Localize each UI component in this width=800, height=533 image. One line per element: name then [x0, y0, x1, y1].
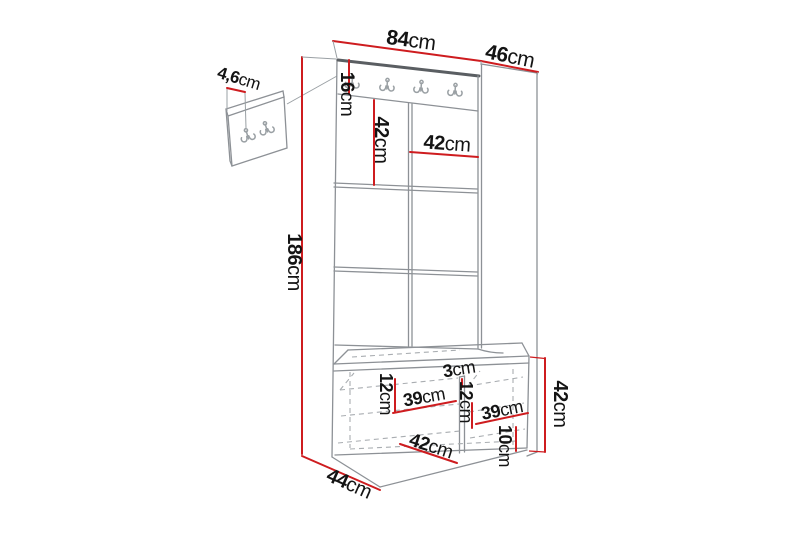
wall-panel-front — [228, 97, 287, 166]
hidden-shelf-line — [341, 404, 459, 416]
dimension-labels-group: 84cm 46cm 4,6cm 16cm 42cm 42cm 186cm 12c… — [215, 25, 571, 503]
dim-label-bench-width-right: 39cm — [479, 396, 524, 424]
wall-panel-unit-leader — [287, 76, 337, 104]
dim-label-total-height: 186cm — [283, 233, 305, 291]
side-panel-floor-edge — [527, 452, 537, 456]
hidden-depth-edge — [340, 373, 354, 390]
coat-hook-icon — [380, 78, 395, 91]
dim-tick — [333, 41, 337, 58]
dim-label-floor-clearance: 10cm — [495, 425, 515, 467]
dim-label-bench-offset-left: 12cm — [376, 373, 396, 415]
unit-bench-junction-curve — [478, 349, 503, 353]
dim-label-bench-depth: 42cm — [407, 429, 456, 463]
seat-front-edge — [334, 356, 529, 364]
dim-label-wall-panel-depth: 4,6cm — [215, 63, 263, 94]
dim-label-panel-height: 42cm — [370, 117, 392, 164]
bench-right-edge — [527, 356, 529, 448]
wall-panel-group — [226, 76, 337, 166]
coat-hook-icon — [414, 80, 429, 93]
dim-label-bench-divider: 3cm — [441, 357, 476, 382]
rail-top-edge — [338, 60, 479, 76]
hidden-seat-edge — [352, 350, 460, 357]
dim-label-depth-top: 46cm — [484, 40, 537, 72]
dim-label-bench-offset-mid: 12cm — [456, 381, 476, 423]
dim-label-base-depth: 44cm — [323, 464, 375, 503]
seat-left-edge — [334, 350, 348, 364]
dim-tick-bench-height-top — [530, 357, 545, 359]
dim-label-panel-width: 42cm — [423, 131, 471, 156]
coat-hook-icon — [448, 83, 463, 96]
dim-label-bench-height: 42cm — [549, 381, 571, 428]
unit-left-edge — [332, 59, 337, 457]
dim-tick-bench-height-bottom — [529, 451, 545, 452]
dim-tick — [302, 57, 336, 59]
dim-label-width-top: 84cm — [385, 25, 437, 54]
diagram-canvas: 84cm 46cm 4,6cm 16cm 42cm 42cm 186cm 12c… — [0, 0, 800, 533]
seat-thickness-edge — [334, 363, 529, 371]
furniture-dimension-diagram: 84cm 46cm 4,6cm 16cm 42cm 42cm 186cm 12c… — [0, 0, 800, 533]
seat-right-edge — [522, 343, 529, 356]
dim-label-rail-height: 16cm — [337, 72, 358, 116]
